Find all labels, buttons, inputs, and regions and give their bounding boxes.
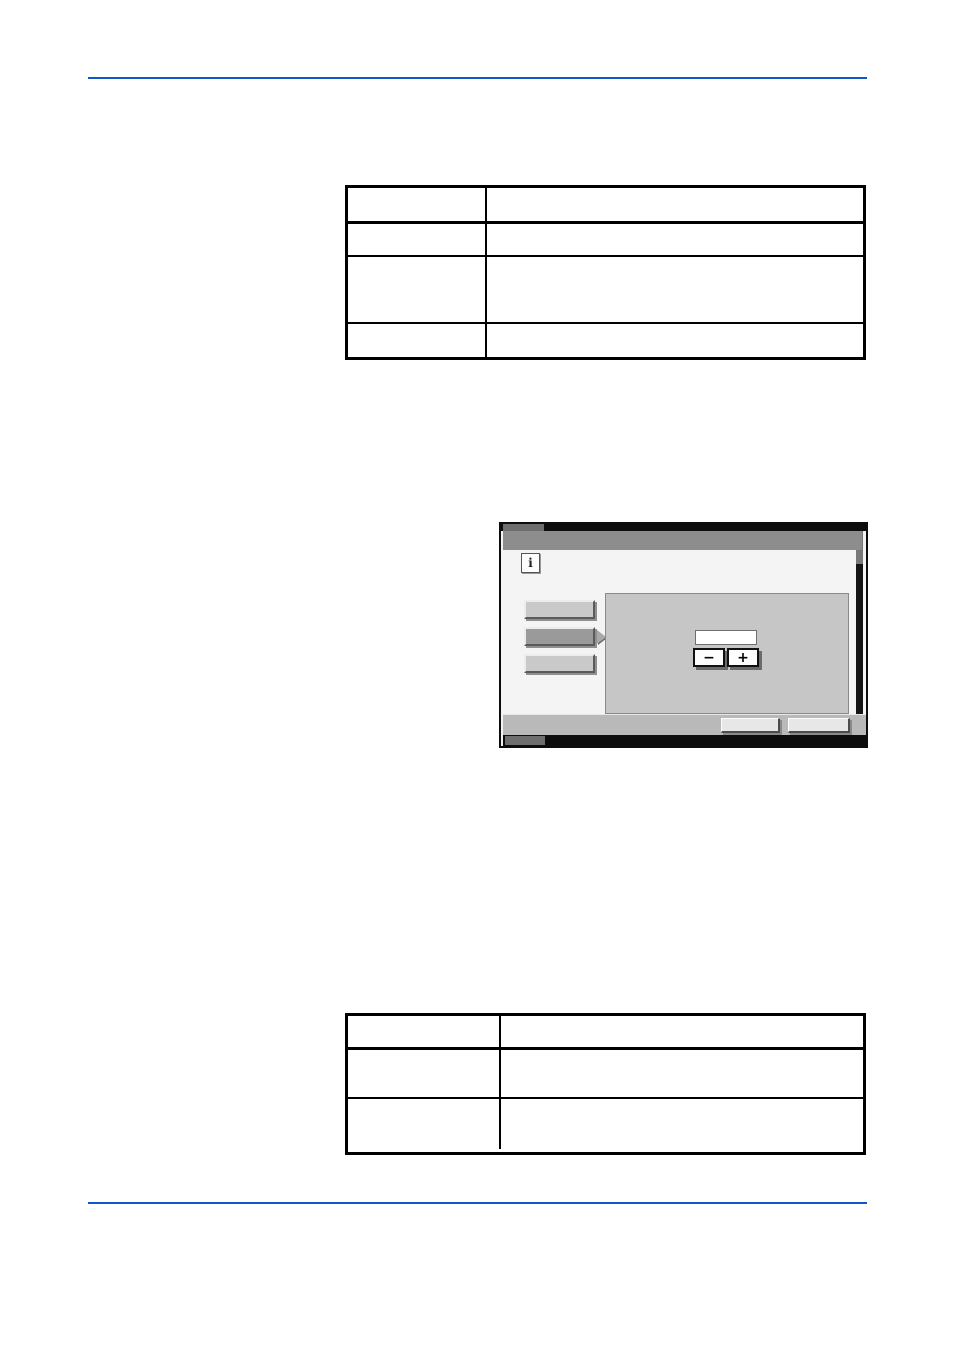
touch-panel-screenshot: i − + bbox=[499, 522, 868, 748]
plus-button[interactable]: + bbox=[727, 648, 759, 667]
table-cell bbox=[487, 224, 863, 255]
panel-top-bezel-notch bbox=[503, 524, 544, 531]
panel-bottom-bar bbox=[503, 714, 866, 735]
top-horizontal-rule bbox=[88, 77, 867, 79]
panel-top-bezel bbox=[501, 524, 866, 531]
table-cell bbox=[348, 1050, 501, 1097]
table-header-cell bbox=[501, 1016, 863, 1047]
table-row bbox=[348, 1099, 863, 1149]
table-cell bbox=[487, 257, 863, 322]
panel-bottom-bezel-tab bbox=[505, 736, 545, 745]
bottom-button-2[interactable] bbox=[788, 718, 850, 733]
table-row bbox=[348, 1016, 863, 1050]
table-cell bbox=[487, 324, 863, 357]
panel-content-area: i − + bbox=[503, 550, 856, 714]
table-cell bbox=[501, 1050, 863, 1097]
table-header-cell bbox=[348, 188, 487, 221]
table-cell bbox=[348, 257, 487, 322]
bottom-horizontal-rule bbox=[88, 1202, 867, 1204]
side-button-2-selected[interactable] bbox=[524, 627, 595, 646]
side-button-1[interactable] bbox=[524, 600, 595, 619]
bottom-button-1[interactable] bbox=[721, 718, 780, 733]
table-bottom bbox=[345, 1013, 866, 1155]
table-header-cell bbox=[487, 188, 863, 221]
table-top bbox=[345, 185, 866, 360]
minus-button[interactable]: − bbox=[693, 648, 725, 667]
table-row bbox=[348, 224, 863, 257]
table-row bbox=[348, 1050, 863, 1099]
panel-bottom-bezel bbox=[503, 735, 866, 746]
table-row bbox=[348, 257, 863, 324]
document-page: i − + bbox=[0, 0, 954, 1350]
value-field[interactable] bbox=[695, 630, 757, 645]
table-header-cell bbox=[348, 1016, 501, 1047]
table-row bbox=[348, 188, 863, 224]
table-cell bbox=[348, 324, 487, 357]
table-row bbox=[348, 324, 863, 357]
table-cell bbox=[501, 1099, 863, 1149]
settings-panel: − + bbox=[605, 593, 849, 714]
panel-title-bar bbox=[503, 531, 862, 550]
info-icon[interactable]: i bbox=[521, 553, 540, 573]
table-cell bbox=[348, 1099, 501, 1149]
side-button-3[interactable] bbox=[524, 654, 595, 673]
table-cell bbox=[348, 224, 487, 255]
